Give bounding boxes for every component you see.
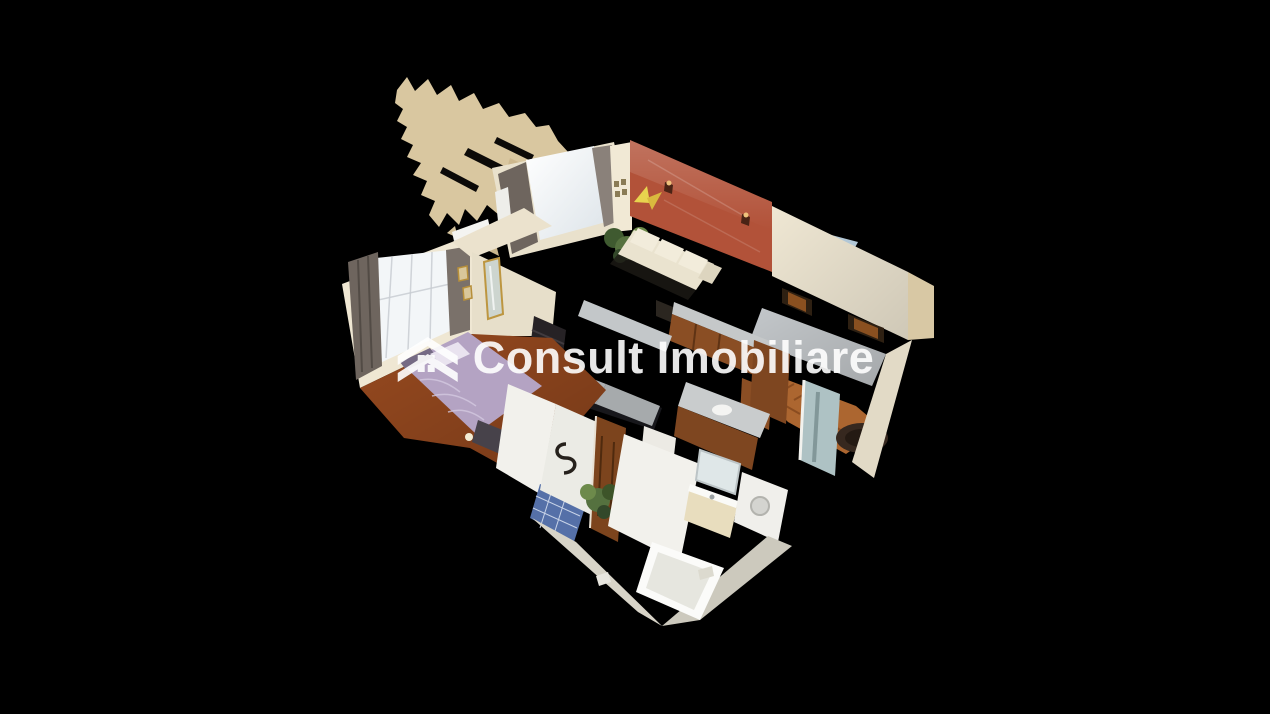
sconce-left-glow [667,181,672,186]
picture-frame-1 [458,266,468,281]
tour-viewer-canvas[interactable]: Consult Imobiliare [0,0,1270,714]
bedroom-drape-left [348,252,382,380]
vanity-faucet [710,495,715,500]
dollhouse-3d-model[interactable] [0,0,1270,714]
washer-door [751,497,769,515]
bedside-lamp [465,433,473,441]
sconce-right-glow [744,213,749,218]
beige-sliver [908,272,934,340]
kitchen-sink [712,405,732,416]
picture-frame-2 [463,286,472,300]
tall-mirror [800,380,840,476]
